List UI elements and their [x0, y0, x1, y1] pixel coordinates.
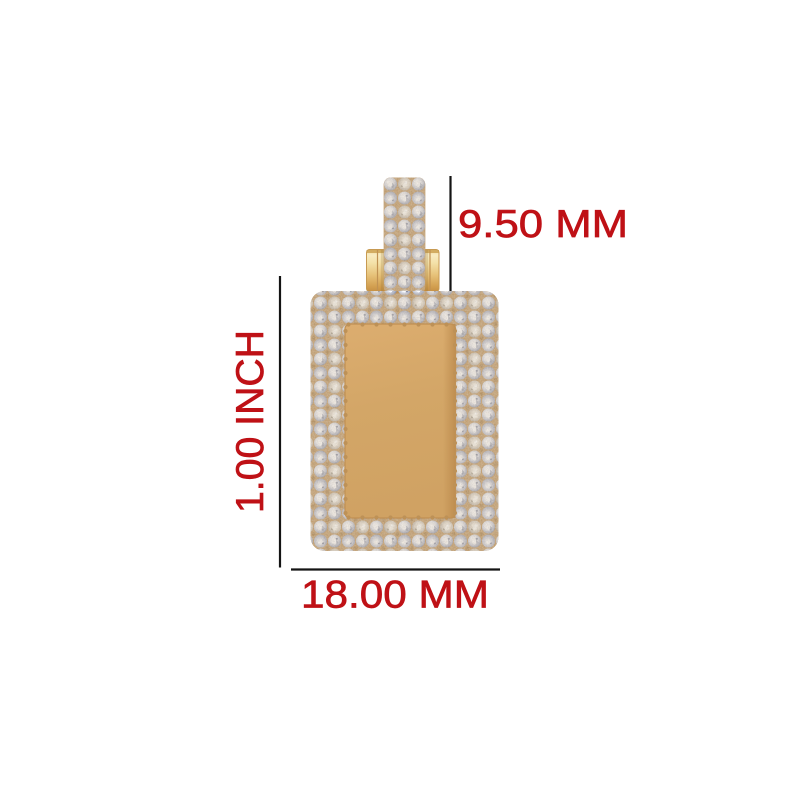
svg-text:18.00 MM: 18.00 MM [301, 574, 489, 617]
svg-text:9.50 MM: 9.50 MM [458, 203, 628, 246]
svg-text:1.00 INCH: 1.00 INCH [229, 330, 272, 513]
